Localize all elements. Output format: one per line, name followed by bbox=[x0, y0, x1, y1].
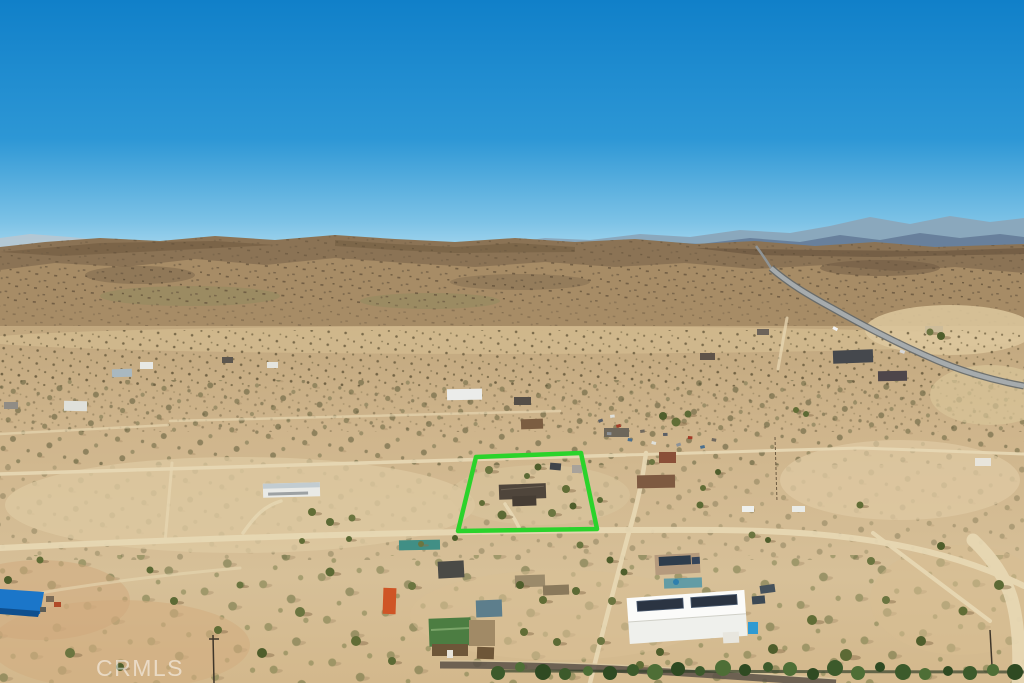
building bbox=[64, 401, 87, 411]
tree bbox=[257, 648, 267, 658]
truck bbox=[752, 595, 766, 604]
building bbox=[757, 329, 769, 335]
tree bbox=[418, 541, 424, 547]
tree bbox=[562, 485, 570, 493]
tree bbox=[37, 557, 44, 564]
aerial-photo: CRMLS bbox=[0, 0, 1024, 683]
tree bbox=[388, 657, 396, 665]
hedge-bush bbox=[627, 664, 639, 676]
tree bbox=[685, 411, 692, 418]
hedge-bush bbox=[515, 662, 525, 672]
hedge-bush bbox=[763, 662, 773, 672]
tree bbox=[479, 500, 485, 506]
tree bbox=[237, 582, 244, 589]
hedge-bush bbox=[807, 668, 819, 680]
tree bbox=[351, 636, 361, 646]
hedge-bush bbox=[895, 664, 911, 680]
tree bbox=[326, 568, 335, 577]
hedge-bush bbox=[715, 660, 731, 676]
hedge-bush bbox=[491, 666, 505, 680]
tree bbox=[937, 332, 945, 340]
watermark-text: CRMLS bbox=[96, 655, 184, 681]
tree bbox=[937, 542, 945, 550]
building bbox=[222, 357, 233, 363]
hedge-bush bbox=[851, 666, 865, 680]
shipping-container bbox=[383, 588, 397, 614]
tree bbox=[214, 626, 222, 634]
hedge-bush bbox=[943, 666, 953, 676]
building bbox=[140, 362, 153, 369]
tree bbox=[768, 644, 778, 654]
hedge-bush bbox=[583, 666, 593, 676]
tree bbox=[700, 485, 706, 491]
tree bbox=[649, 459, 655, 465]
tree bbox=[308, 508, 316, 516]
tree bbox=[749, 532, 756, 539]
tree bbox=[520, 628, 528, 636]
shed bbox=[572, 465, 582, 473]
building bbox=[267, 362, 278, 368]
cabin-addition bbox=[469, 620, 495, 646]
hedge-bush bbox=[783, 662, 797, 676]
tree bbox=[656, 648, 664, 656]
pool bbox=[673, 579, 679, 585]
hedge-bush bbox=[1007, 664, 1023, 680]
aerial-photo-canvas: CRMLS bbox=[0, 0, 1024, 683]
hedge-bush bbox=[987, 664, 999, 676]
hedge-bush bbox=[671, 662, 685, 676]
parked-vehicle bbox=[550, 463, 562, 471]
tree bbox=[672, 418, 681, 427]
junk bbox=[663, 433, 668, 436]
tree bbox=[765, 537, 771, 543]
hedge-bush bbox=[603, 666, 617, 680]
tree bbox=[346, 536, 352, 542]
junk bbox=[46, 596, 54, 602]
tree bbox=[65, 648, 75, 658]
neighbor-house bbox=[637, 475, 675, 489]
tree bbox=[807, 615, 817, 625]
tree bbox=[608, 597, 616, 605]
blue-shed bbox=[748, 622, 758, 634]
utility-pole bbox=[213, 635, 214, 683]
tree bbox=[597, 637, 605, 645]
tree bbox=[498, 511, 507, 520]
white-shed bbox=[723, 632, 740, 644]
tree bbox=[539, 596, 547, 604]
tree bbox=[697, 502, 704, 509]
tree bbox=[867, 557, 875, 565]
tree bbox=[994, 580, 1004, 590]
shed-cluster bbox=[543, 585, 569, 596]
tree bbox=[349, 515, 356, 522]
building bbox=[700, 353, 715, 360]
hedge-bush bbox=[827, 660, 843, 676]
solar-house bbox=[655, 553, 701, 575]
white-modern-house bbox=[263, 482, 320, 497]
tree bbox=[715, 469, 721, 475]
tree bbox=[577, 542, 584, 549]
tree bbox=[572, 587, 580, 595]
junk bbox=[40, 607, 46, 612]
tree bbox=[524, 473, 530, 479]
tree bbox=[548, 509, 556, 517]
sky bbox=[0, 0, 1024, 252]
hedge-bush bbox=[739, 664, 751, 676]
tree bbox=[803, 411, 809, 417]
solar-panel-array bbox=[659, 555, 691, 566]
tree bbox=[295, 607, 305, 617]
tree bbox=[147, 567, 154, 574]
hedge-bush bbox=[919, 668, 931, 680]
hedge-bush bbox=[535, 664, 551, 680]
tree bbox=[326, 518, 334, 526]
trailer bbox=[742, 506, 754, 512]
tree bbox=[4, 576, 12, 584]
hedge-bush bbox=[963, 666, 977, 680]
junk bbox=[607, 432, 612, 435]
pool-deck bbox=[664, 577, 702, 588]
tree bbox=[452, 535, 458, 541]
tree bbox=[485, 466, 493, 474]
sky-gradient bbox=[0, 0, 1024, 252]
tree bbox=[959, 607, 968, 616]
house-wing bbox=[512, 496, 536, 507]
junk bbox=[54, 602, 61, 607]
hedge-bush bbox=[559, 668, 571, 680]
tree bbox=[607, 557, 614, 564]
hedge-bush bbox=[647, 664, 663, 680]
green-cabin-roof bbox=[429, 617, 472, 646]
tree bbox=[516, 581, 524, 589]
building bbox=[975, 458, 991, 466]
trailer bbox=[792, 506, 805, 512]
tree bbox=[570, 503, 577, 510]
junk bbox=[688, 436, 693, 439]
shed bbox=[659, 452, 676, 463]
cabin-door bbox=[447, 650, 453, 658]
tree bbox=[535, 464, 542, 471]
tree bbox=[170, 597, 178, 605]
junk bbox=[610, 414, 615, 418]
tree bbox=[408, 582, 416, 590]
building bbox=[112, 369, 132, 378]
commercial-building bbox=[833, 349, 873, 363]
tree bbox=[597, 497, 603, 503]
hedge-bush bbox=[695, 666, 705, 676]
tree bbox=[882, 596, 890, 604]
solar-panel bbox=[692, 557, 700, 564]
building bbox=[514, 397, 531, 405]
gray-gable-shed bbox=[476, 600, 503, 618]
building bbox=[4, 402, 18, 409]
tree bbox=[840, 649, 852, 661]
junk bbox=[640, 429, 645, 433]
hedge-bush bbox=[875, 662, 885, 672]
tree bbox=[659, 412, 667, 420]
tree bbox=[299, 538, 305, 544]
brown-shed bbox=[477, 647, 494, 660]
dark-outbuilding bbox=[438, 560, 465, 578]
tree bbox=[927, 329, 934, 336]
building bbox=[447, 389, 482, 401]
tree bbox=[793, 407, 799, 413]
building bbox=[521, 419, 543, 430]
tree bbox=[857, 502, 864, 509]
commercial-building bbox=[878, 371, 907, 382]
tree bbox=[916, 636, 926, 646]
tree bbox=[553, 638, 561, 646]
tree bbox=[621, 569, 628, 576]
